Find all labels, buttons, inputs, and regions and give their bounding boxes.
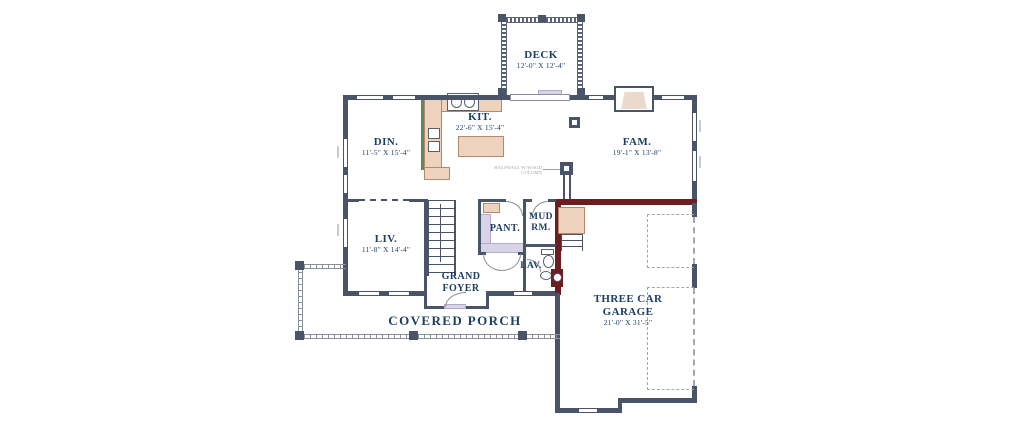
kitchen-counter — [424, 167, 450, 180]
sliding-door — [510, 94, 570, 101]
room-label-deck: DECK 12'-0" X 12'-4" — [499, 49, 583, 71]
window — [588, 95, 604, 100]
porch-post — [409, 331, 418, 340]
halfwall — [569, 175, 571, 199]
room-name: LAV. — [518, 261, 544, 272]
room-name: GRAND FOYER — [430, 271, 492, 295]
wall — [466, 306, 489, 309]
window — [358, 291, 380, 296]
room-label-pantry: PANT. — [486, 223, 524, 235]
room-label-foyer: GRAND FOYER — [430, 271, 492, 295]
dishwasher-icon — [428, 141, 440, 152]
wall — [478, 199, 481, 255]
halfwall — [563, 175, 565, 199]
kitchen-island — [458, 136, 504, 157]
wall — [478, 199, 506, 202]
window — [692, 150, 697, 182]
deck-post — [498, 14, 506, 22]
cased-opening — [359, 199, 409, 203]
room-name: MUD RM. — [523, 212, 559, 234]
wall — [424, 306, 444, 309]
porch-railing — [298, 264, 346, 269]
room-dims: 21'-0" X 31'-5" — [582, 319, 674, 328]
door-swing — [506, 201, 523, 216]
room-label-garage: THREE CAR GARAGE 21'-0" X 31'-5" — [582, 293, 674, 328]
stair-rail — [440, 204, 441, 262]
wall — [555, 293, 560, 413]
room-label-dining: DIN. 11'-5" X 15'-4" — [344, 136, 428, 158]
porch-railing — [298, 264, 303, 339]
dim-tick — [337, 146, 339, 158]
dim-tick — [337, 224, 339, 236]
room-name: PANT. — [486, 223, 524, 235]
room-label-porch: COVERED PORCH — [376, 313, 534, 328]
room-name: THREE CAR GARAGE — [582, 293, 674, 319]
room-dims: 19'-1" X 13'-8" — [590, 149, 684, 158]
kitchen-cabinet-edge — [421, 98, 424, 170]
window — [661, 95, 685, 100]
stairs — [427, 200, 456, 276]
dim-tick — [699, 120, 701, 132]
toilet-icon — [543, 255, 554, 268]
wall — [618, 398, 697, 403]
fireplace-firebox — [621, 92, 647, 109]
wall — [343, 199, 359, 202]
mudroom-bench — [483, 203, 500, 213]
wall — [343, 291, 427, 296]
red-wall — [555, 199, 697, 205]
garage-bay-dashed — [647, 214, 694, 268]
deck-post — [577, 14, 585, 22]
room-label-family: FAM. 19'-1" X 13'-8" — [590, 136, 684, 158]
window — [513, 291, 533, 296]
room-name: COVERED PORCH — [376, 313, 534, 328]
window — [578, 408, 598, 413]
utility-meter-icon — [553, 273, 562, 282]
room-label-living: LIV. 11'-8" X 14'-4" — [344, 233, 428, 255]
leader-line — [543, 169, 560, 170]
room-label-kitchen: KIT. 22'-6" X 15'-4" — [446, 111, 514, 133]
wall — [526, 244, 556, 247]
room-dims: 11'-5" X 15'-4" — [344, 149, 428, 158]
window — [692, 112, 697, 142]
garage-steps — [561, 234, 583, 251]
structural-post-core — [572, 120, 577, 125]
porch-post — [518, 331, 527, 340]
porch-post — [295, 331, 304, 340]
floor-plan: DECK 12'-0" X 12'-4" — [0, 0, 1024, 432]
wall — [548, 199, 556, 202]
room-dims: 11'-8" X 14'-4" — [344, 246, 428, 255]
stair-landing — [558, 207, 585, 234]
window — [388, 291, 410, 296]
window — [343, 174, 348, 194]
room-dims: 12'-0" X 12'-4" — [499, 62, 583, 71]
door-swing — [483, 254, 502, 271]
dim-tick — [699, 156, 701, 168]
room-dims: 22'-6" X 15'-4" — [446, 124, 514, 133]
halfwall-note: HALFWALL W/WOOD COLUMN — [488, 166, 542, 175]
deck-post — [538, 15, 546, 22]
room-label-mudroom: MUD RM. — [523, 212, 559, 234]
porch-post — [295, 261, 304, 270]
wood-column-core — [564, 166, 569, 171]
window — [356, 95, 384, 100]
room-label-lavatory: LAV. — [518, 261, 544, 272]
sink-icon — [428, 128, 440, 139]
window — [392, 95, 416, 100]
